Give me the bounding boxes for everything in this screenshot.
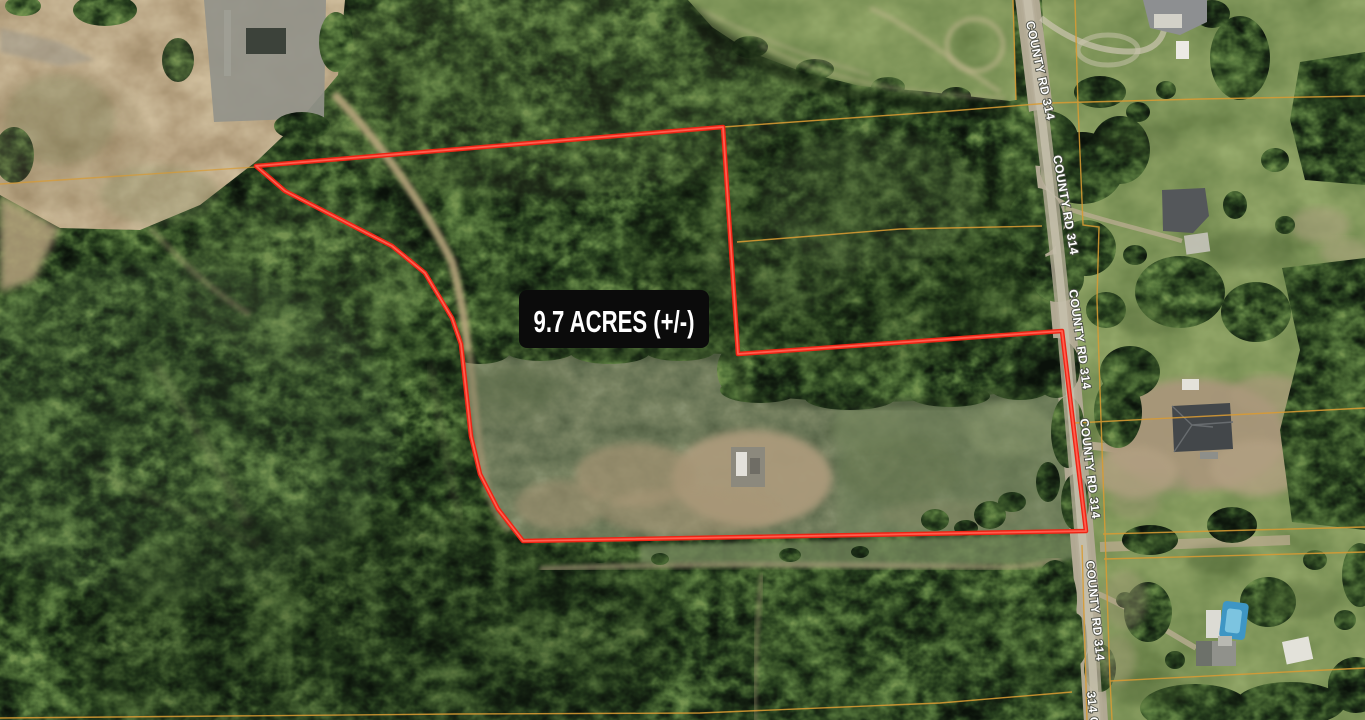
- svg-text:9.7 ACRES (+/-): 9.7 ACRES (+/-): [534, 304, 695, 339]
- svg-text:314 C: 314 C: [1084, 691, 1102, 720]
